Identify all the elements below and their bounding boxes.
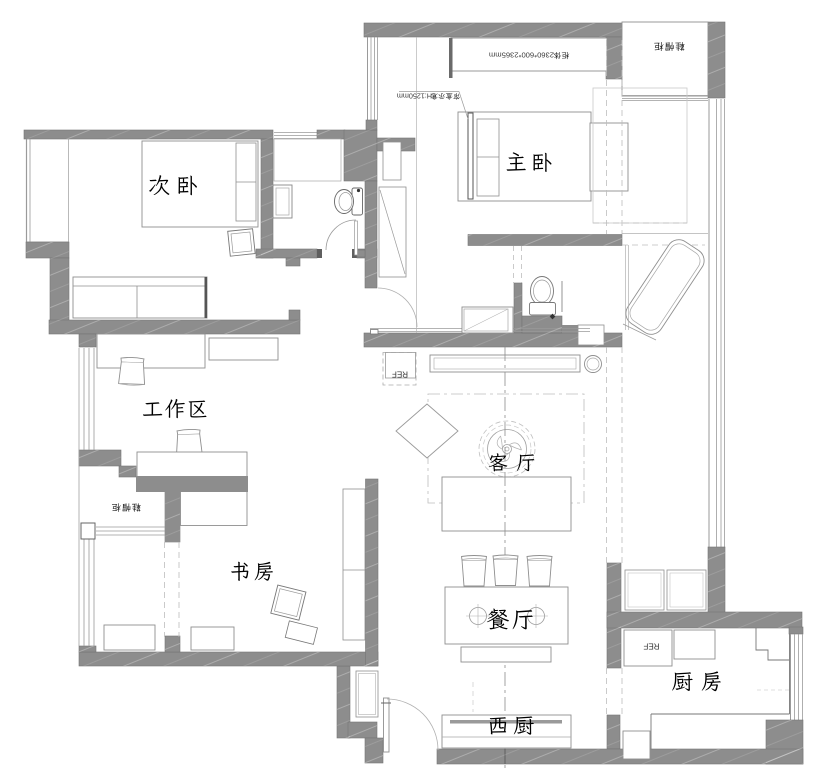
svg-text:REF: REF [392,370,408,379]
svg-text:H:1250mm: H:1250mm [397,92,432,101]
svg-text:2360*600*2365mm: 2360*600*2365mm [489,51,554,60]
svg-text:REF: REF [643,642,659,651]
